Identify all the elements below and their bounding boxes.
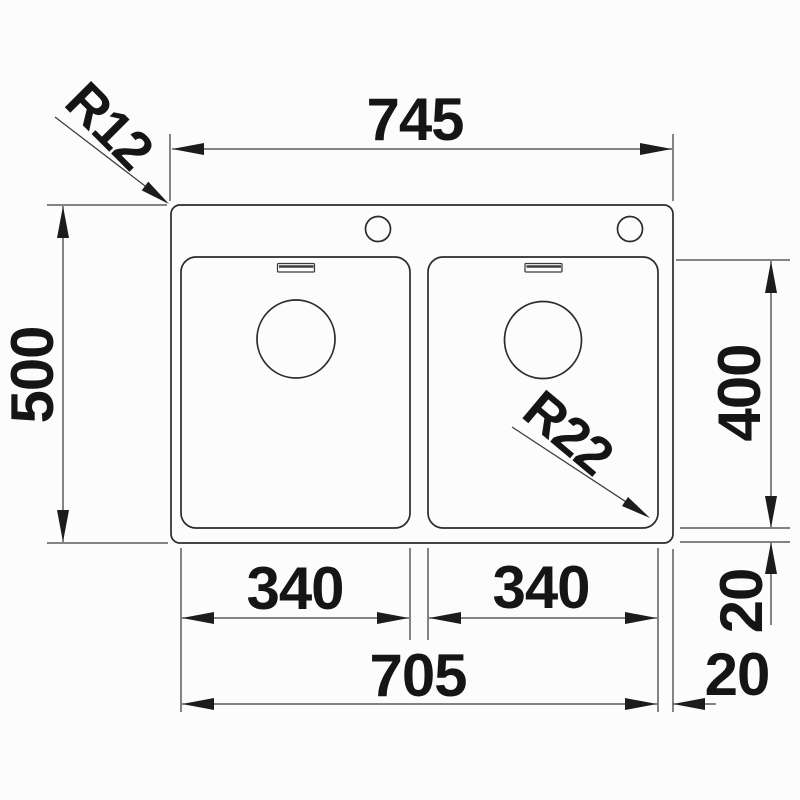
dim-label-bottom-rim-offset: 20	[705, 645, 770, 705]
overflow-slot-left	[278, 264, 315, 273]
drain-circle-right	[505, 302, 582, 379]
drain-circle-left	[257, 300, 335, 378]
dim-label-right-bowl-width: 340	[492, 558, 589, 618]
arrowhead	[182, 612, 214, 624]
arrowhead	[765, 496, 777, 528]
dim-label-bowl-depth: 400	[710, 344, 770, 441]
sink-outline-group	[171, 205, 673, 543]
arrowhead	[429, 612, 461, 624]
arrowhead	[57, 510, 69, 542]
arrowhead	[625, 612, 657, 624]
arrowhead	[625, 698, 657, 710]
dim-label-overall-depth: 500	[3, 326, 63, 423]
technical-drawing-canvas: 745 500 400 20 340 340 705 20 R12 R22	[0, 0, 800, 800]
arrowhead	[673, 698, 705, 710]
dim-label-left-bowl-width: 340	[246, 559, 343, 619]
arrowhead	[57, 206, 69, 238]
sink-outline	[171, 205, 673, 543]
faucet-hole-right	[618, 217, 643, 242]
arrowhead	[182, 698, 214, 710]
left-bowl-outline	[181, 257, 410, 528]
dim-label-right-rim-offset: 20	[712, 569, 772, 634]
arrowhead	[622, 497, 650, 518]
dim-label-bowls-span: 705	[369, 646, 466, 706]
arrowhead	[142, 182, 169, 204]
arrowhead	[640, 143, 672, 155]
overflow-slot-right	[525, 264, 562, 273]
dim-label-overall-width: 745	[366, 90, 463, 150]
arrowhead	[377, 612, 409, 624]
arrowhead	[172, 143, 204, 155]
faucet-hole-left	[366, 217, 391, 242]
arrowhead	[765, 261, 777, 293]
